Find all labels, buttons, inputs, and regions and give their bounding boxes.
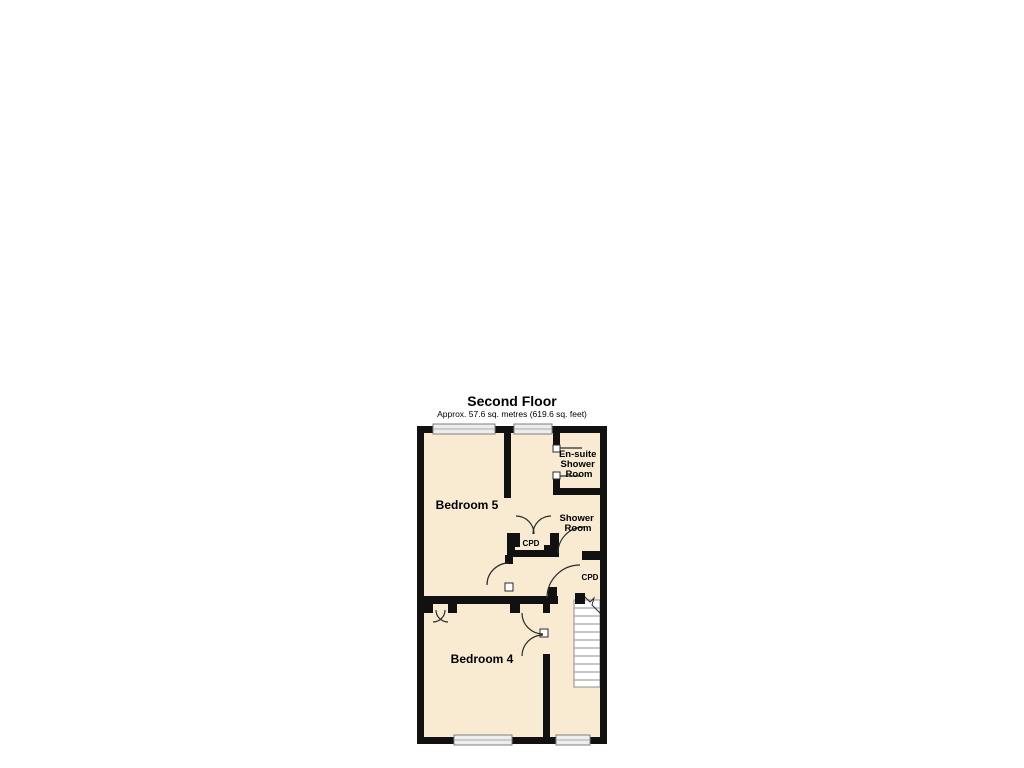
bedroom4-door-jamb (540, 629, 548, 637)
plan-title: Second Floor (467, 393, 557, 409)
room-label-bedroom-4: Bedroom 4 (451, 652, 514, 666)
window-top-left (433, 424, 495, 434)
floor-plan-drawing: Second Floor Approx. 57.6 sq. metres (61… (0, 0, 1024, 768)
stair-flight (574, 600, 600, 687)
room-label-cupboard-landing: CPD (582, 573, 599, 582)
room-label-cupboard-middle: CPD (523, 539, 540, 548)
window-bottom-left (454, 735, 512, 745)
room-label-bedroom-5: Bedroom 5 (436, 498, 499, 512)
staircase (574, 595, 601, 687)
window-top-right (514, 424, 552, 434)
ensuite-door-jamb-bottom (553, 472, 560, 479)
window-bottom-right (556, 735, 590, 745)
plan-area-subtitle: Approx. 57.6 sq. metres (619.6 sq. feet) (437, 409, 587, 419)
floor-plan-page: Second Floor Approx. 57.6 sq. metres (61… (0, 0, 1024, 768)
bedroom5-door-jamb (505, 583, 513, 591)
room-label-shower-room: Shower Room (560, 513, 597, 534)
